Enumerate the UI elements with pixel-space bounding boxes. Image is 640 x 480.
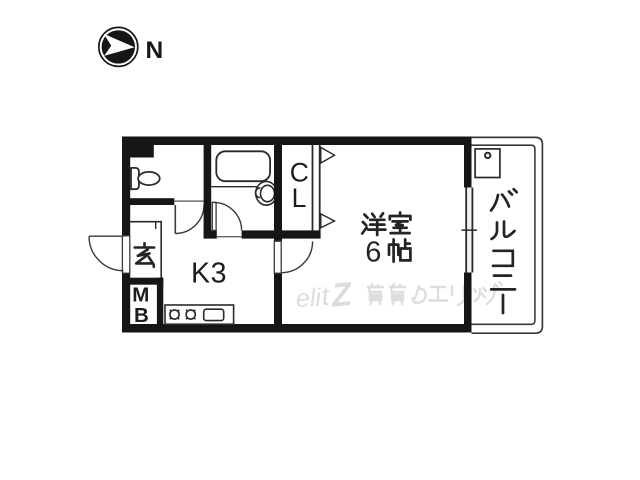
svg-text:L: L [292, 183, 307, 213]
svg-text:N: N [146, 37, 164, 64]
svg-text:B: B [134, 304, 149, 327]
svg-text:3: 3 [211, 258, 227, 290]
svg-text:K: K [191, 258, 210, 290]
svg-text:6: 6 [365, 237, 381, 269]
svg-text:eli: eli [295, 283, 323, 313]
